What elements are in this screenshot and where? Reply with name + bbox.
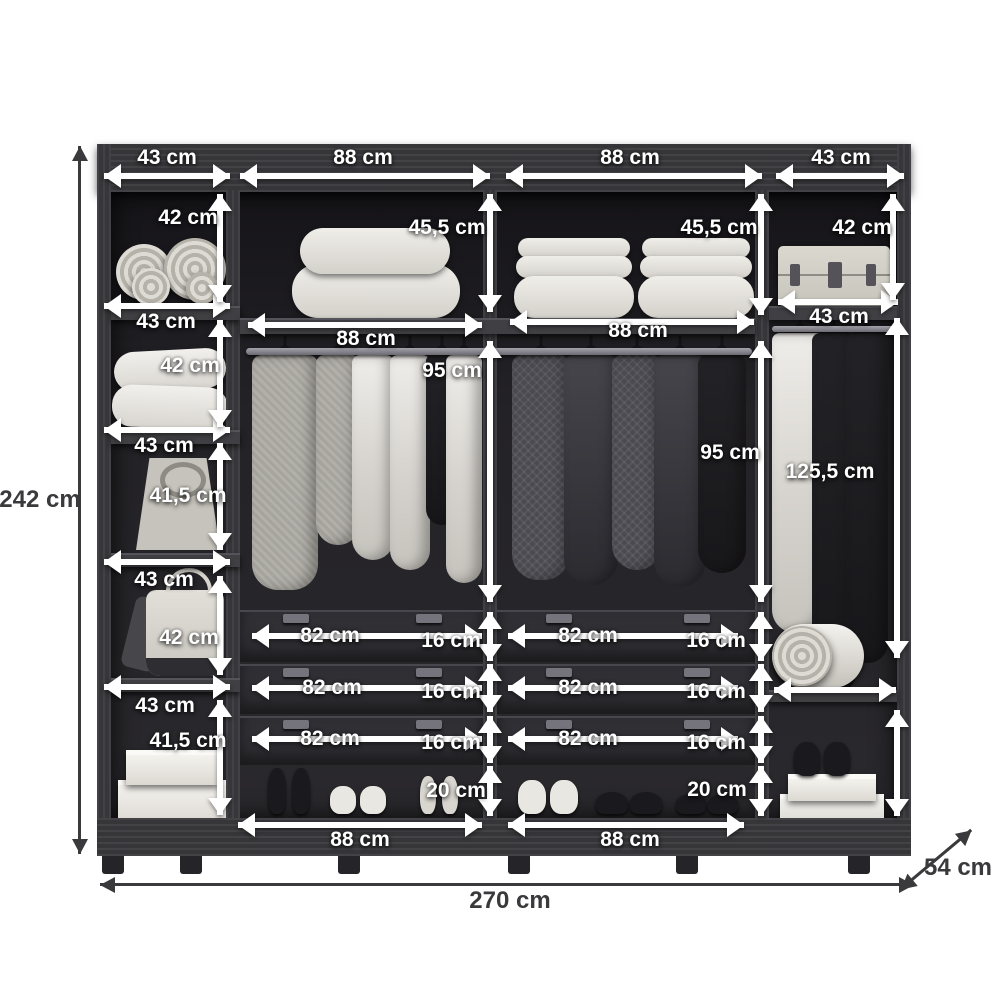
storage-box — [126, 750, 218, 785]
dim-label: 16 cm — [686, 731, 746, 755]
dim-label: 16 cm — [421, 629, 481, 653]
dim-label: 82 cm — [300, 727, 360, 751]
dim-label: 88 cm — [330, 828, 390, 852]
folded-linens — [642, 238, 750, 258]
dim-arrow — [240, 173, 490, 179]
hanging-robe — [252, 355, 318, 590]
dim-label: 41,5 cm — [149, 484, 226, 508]
dress-shoes — [596, 792, 628, 814]
dim-arrow — [758, 716, 764, 763]
suitcase-clasp — [828, 262, 842, 288]
dim-arrow — [758, 341, 764, 602]
wardrobe-foot — [848, 856, 870, 874]
sneakers — [518, 780, 546, 814]
folded-linens — [640, 256, 752, 278]
wardrobe-dimension-diagram: 43 cm 88 cm 88 cm 43 cm 42 cm 43 cm 42 c… — [0, 0, 1000, 1000]
dim-label: 125,5 cm — [786, 460, 875, 484]
dim-arrow — [776, 173, 904, 179]
shoes — [794, 742, 820, 776]
folded-linens — [516, 256, 632, 278]
dim-arrow — [487, 612, 493, 661]
wardrobe-foot — [102, 856, 124, 874]
rolled-towels — [132, 268, 170, 306]
dim-label: 43 cm — [135, 694, 195, 718]
drawer-handle — [416, 668, 442, 677]
dim-arrow — [487, 194, 493, 312]
shoes — [268, 768, 286, 814]
dim-arrow — [890, 194, 896, 300]
dim-label: 88 cm — [600, 146, 660, 170]
dim-label: 82 cm — [300, 624, 360, 648]
bottom-panel — [97, 818, 911, 856]
dress-shoes — [630, 792, 662, 814]
dim-arrow — [104, 559, 230, 565]
folded-linens — [518, 238, 630, 258]
wardrobe-foot — [338, 856, 360, 874]
hanging-suit — [512, 355, 570, 580]
drawer-handle — [283, 614, 309, 623]
dim-arrow — [104, 684, 230, 690]
sneakers — [330, 786, 356, 814]
dim-arrow — [104, 427, 230, 433]
side-panel-left — [97, 144, 111, 856]
dim-arrow — [487, 341, 493, 602]
hanging-shirt — [446, 355, 482, 583]
dim-label: 88 cm — [608, 319, 668, 343]
dim-arrow — [758, 194, 764, 315]
dim-label: 20 cm — [687, 778, 747, 802]
hanging-shirt — [390, 355, 430, 570]
dim-arrow — [758, 664, 764, 712]
dim-arrow — [487, 716, 493, 763]
dim-arrow — [894, 318, 900, 658]
dim-label: 41,5 cm — [149, 729, 226, 753]
dim-label: 43 cm — [136, 310, 196, 334]
dim-label: 42 cm — [160, 354, 220, 378]
drawer-handle — [684, 614, 710, 623]
sneakers — [550, 780, 578, 814]
drawer-handle — [416, 720, 442, 729]
overall-width-label: 270 cm — [469, 887, 550, 915]
overall-height-label: 242 cm — [0, 486, 81, 514]
dim-label: 95 cm — [422, 359, 482, 383]
overall-depth-label: 54 cm — [924, 854, 992, 882]
dim-label: 82 cm — [558, 727, 618, 751]
dim-label: 16 cm — [421, 680, 481, 704]
dim-label: 88 cm — [600, 828, 660, 852]
dim-arrow — [104, 303, 230, 309]
dim-label: 42 cm — [832, 216, 892, 240]
dim-label: 16 cm — [686, 680, 746, 704]
dim-arrow — [104, 173, 230, 179]
dim-label: 43 cm — [134, 434, 194, 458]
dim-label: 16 cm — [421, 731, 481, 755]
dim-label: 88 cm — [333, 146, 393, 170]
dim-label: 42 cm — [158, 206, 218, 230]
suitcase-clasp — [866, 264, 876, 286]
shoes — [292, 768, 310, 814]
dim-label: 82 cm — [558, 624, 618, 648]
dim-label: 43 cm — [811, 146, 871, 170]
dim-label: 43 cm — [137, 146, 197, 170]
overall-width-arrow — [100, 883, 914, 886]
folded-linens — [514, 276, 634, 318]
hanging-shirt — [352, 355, 394, 560]
drawer-handle — [416, 614, 442, 623]
dim-label: 45,5 cm — [408, 216, 485, 240]
dim-arrow — [894, 710, 900, 816]
suitcase-clasp — [790, 264, 800, 286]
dim-arrow — [774, 687, 896, 693]
drawer-handle — [684, 720, 710, 729]
dim-label: 16 cm — [686, 629, 746, 653]
hanging-suit — [564, 355, 618, 585]
dim-label: 82 cm — [558, 676, 618, 700]
wardrobe-foot — [508, 856, 530, 874]
dim-arrow — [758, 612, 764, 661]
dim-arrow — [506, 173, 762, 179]
dim-label: 43 cm — [809, 305, 869, 329]
wardrobe-foot — [180, 856, 202, 874]
dim-arrow — [487, 766, 493, 816]
hanging-dress — [846, 333, 888, 663]
shoe-box — [788, 774, 876, 801]
dim-label: 45,5 cm — [680, 216, 757, 240]
drawer-handle — [546, 614, 572, 623]
dim-label: 82 cm — [302, 676, 362, 700]
towel-roll-end — [772, 626, 832, 686]
dim-label: 42 cm — [159, 626, 219, 650]
dim-arrow — [758, 766, 764, 816]
dim-label: 88 cm — [336, 327, 396, 351]
dim-arrow — [487, 664, 493, 712]
drawer-handle — [684, 668, 710, 677]
dim-label: 95 cm — [700, 441, 760, 465]
dim-label: 20 cm — [426, 779, 486, 803]
dim-arrow — [217, 700, 223, 815]
wardrobe-foot — [676, 856, 698, 874]
dim-label: 43 cm — [134, 568, 194, 592]
shoes — [824, 742, 850, 776]
sneakers — [360, 786, 386, 814]
